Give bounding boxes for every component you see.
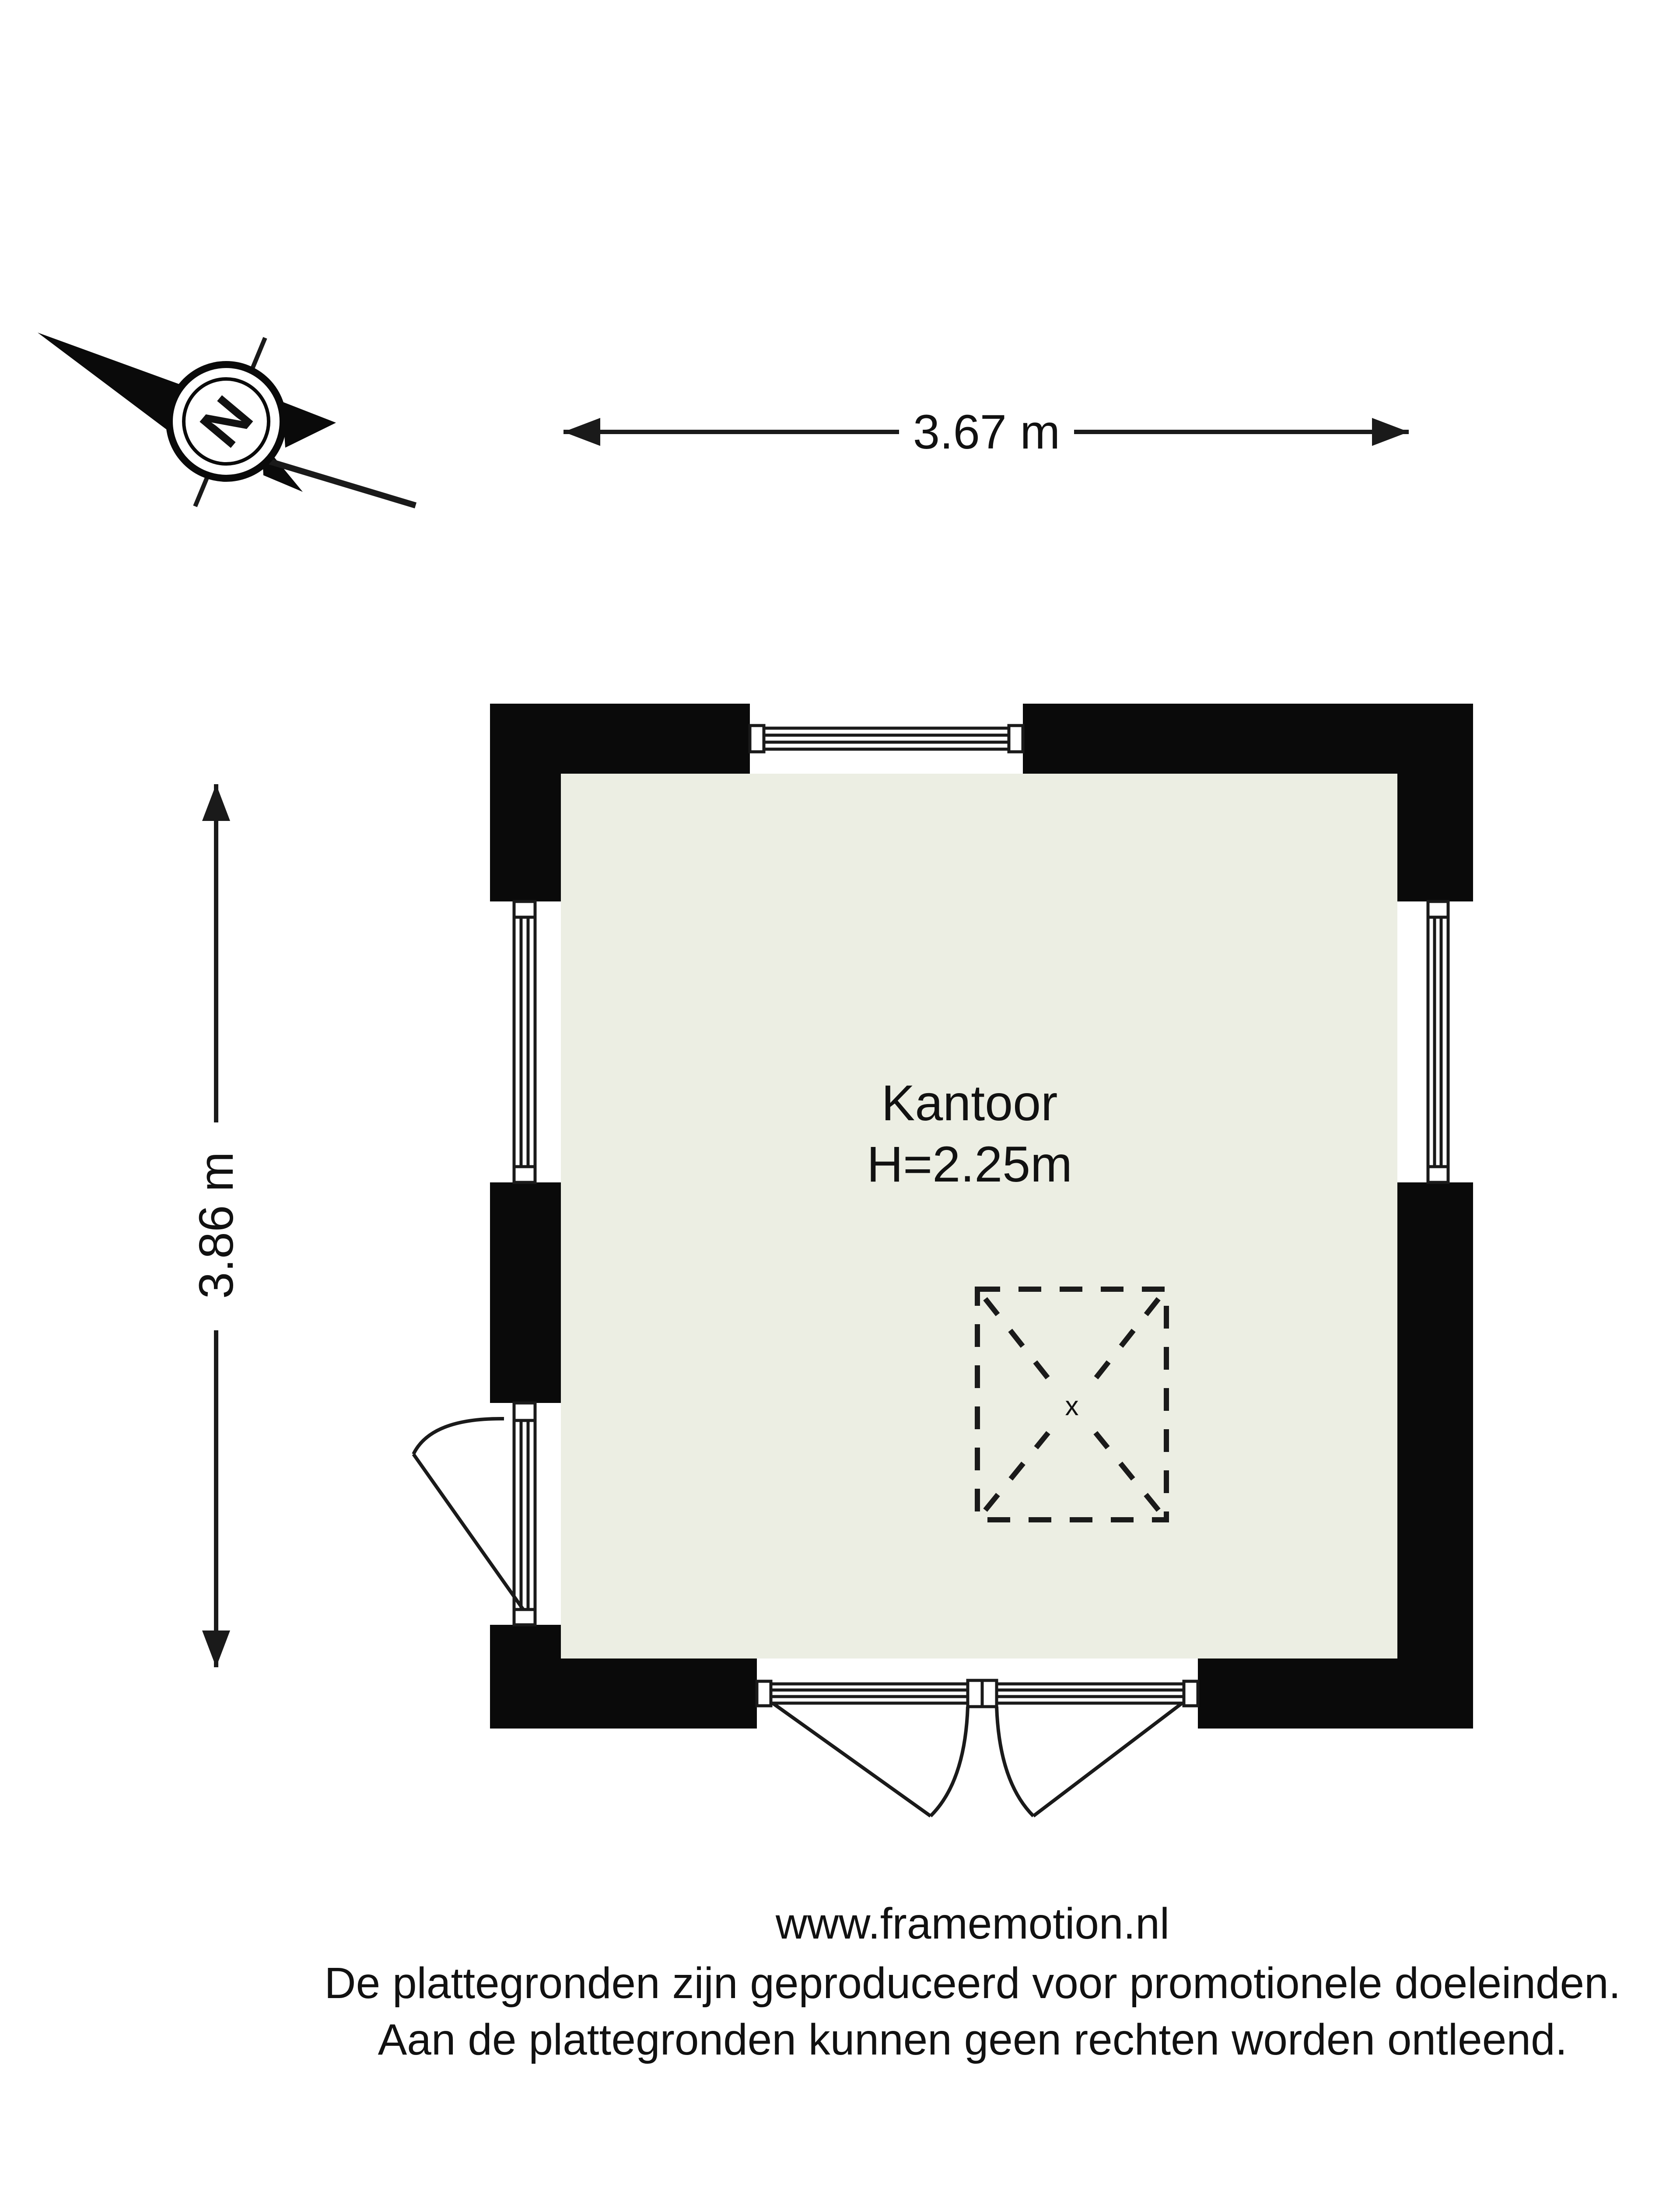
room-floor — [561, 774, 1397, 1659]
door-leaf-left — [773, 1703, 931, 1816]
door-leaf — [413, 1454, 523, 1609]
window-symbol-top — [750, 726, 1023, 752]
footer-disclaimer-line1: De plattegronden zijn geproduceerd voor … — [324, 1959, 1620, 2008]
width-dimension-label: 3.67 m — [913, 405, 1060, 459]
arrowhead-right — [1372, 418, 1409, 446]
compass-flare-east — [282, 402, 336, 448]
wall-segment — [1397, 704, 1473, 901]
door-swing-left — [413, 1403, 535, 1625]
window-symbol-right — [1428, 901, 1448, 1182]
floorplan-page: N 3.67 m 3.86 m — [0, 0, 1680, 2188]
arrowhead-up — [202, 784, 230, 821]
door-leaf-right — [1033, 1703, 1182, 1816]
north-compass-icon: N — [38, 333, 416, 506]
wall-segment — [490, 704, 561, 901]
wall-segment — [490, 1182, 561, 1403]
door-arc-right — [997, 1707, 1033, 1816]
wall-segment — [1397, 1182, 1473, 1729]
footer: www.framemotion.nl De plattegronden zijn… — [324, 1899, 1620, 2064]
arrowhead-left — [563, 418, 600, 446]
height-dimension-label: 3.86 m — [189, 1152, 243, 1299]
door-arc — [413, 1419, 504, 1454]
window-symbol-left — [514, 901, 535, 1182]
wall-segment — [1198, 1659, 1473, 1729]
footer-disclaimer-line2: Aan de plattegronden kunnen geen rechten… — [378, 2015, 1568, 2064]
room-name-label: Kantoor — [882, 1075, 1058, 1131]
wall-segment — [490, 1659, 757, 1729]
footer-website: www.framemotion.nl — [775, 1899, 1169, 1948]
double-door-bottom — [757, 1680, 1198, 1816]
dimension-width: 3.67 m — [563, 405, 1409, 459]
floorplan-canvas: N 3.67 m 3.86 m — [0, 0, 1680, 2188]
floorplan: x Kantoor H=2.25m — [413, 704, 1473, 1816]
arrowhead-down — [202, 1630, 230, 1667]
compass-needle-nw — [38, 333, 185, 431]
dimension-height: 3.86 m — [189, 784, 243, 1667]
skylight-label: x — [1065, 1391, 1079, 1421]
door-arc-left — [931, 1707, 968, 1816]
room-height-label: H=2.25m — [867, 1136, 1072, 1192]
